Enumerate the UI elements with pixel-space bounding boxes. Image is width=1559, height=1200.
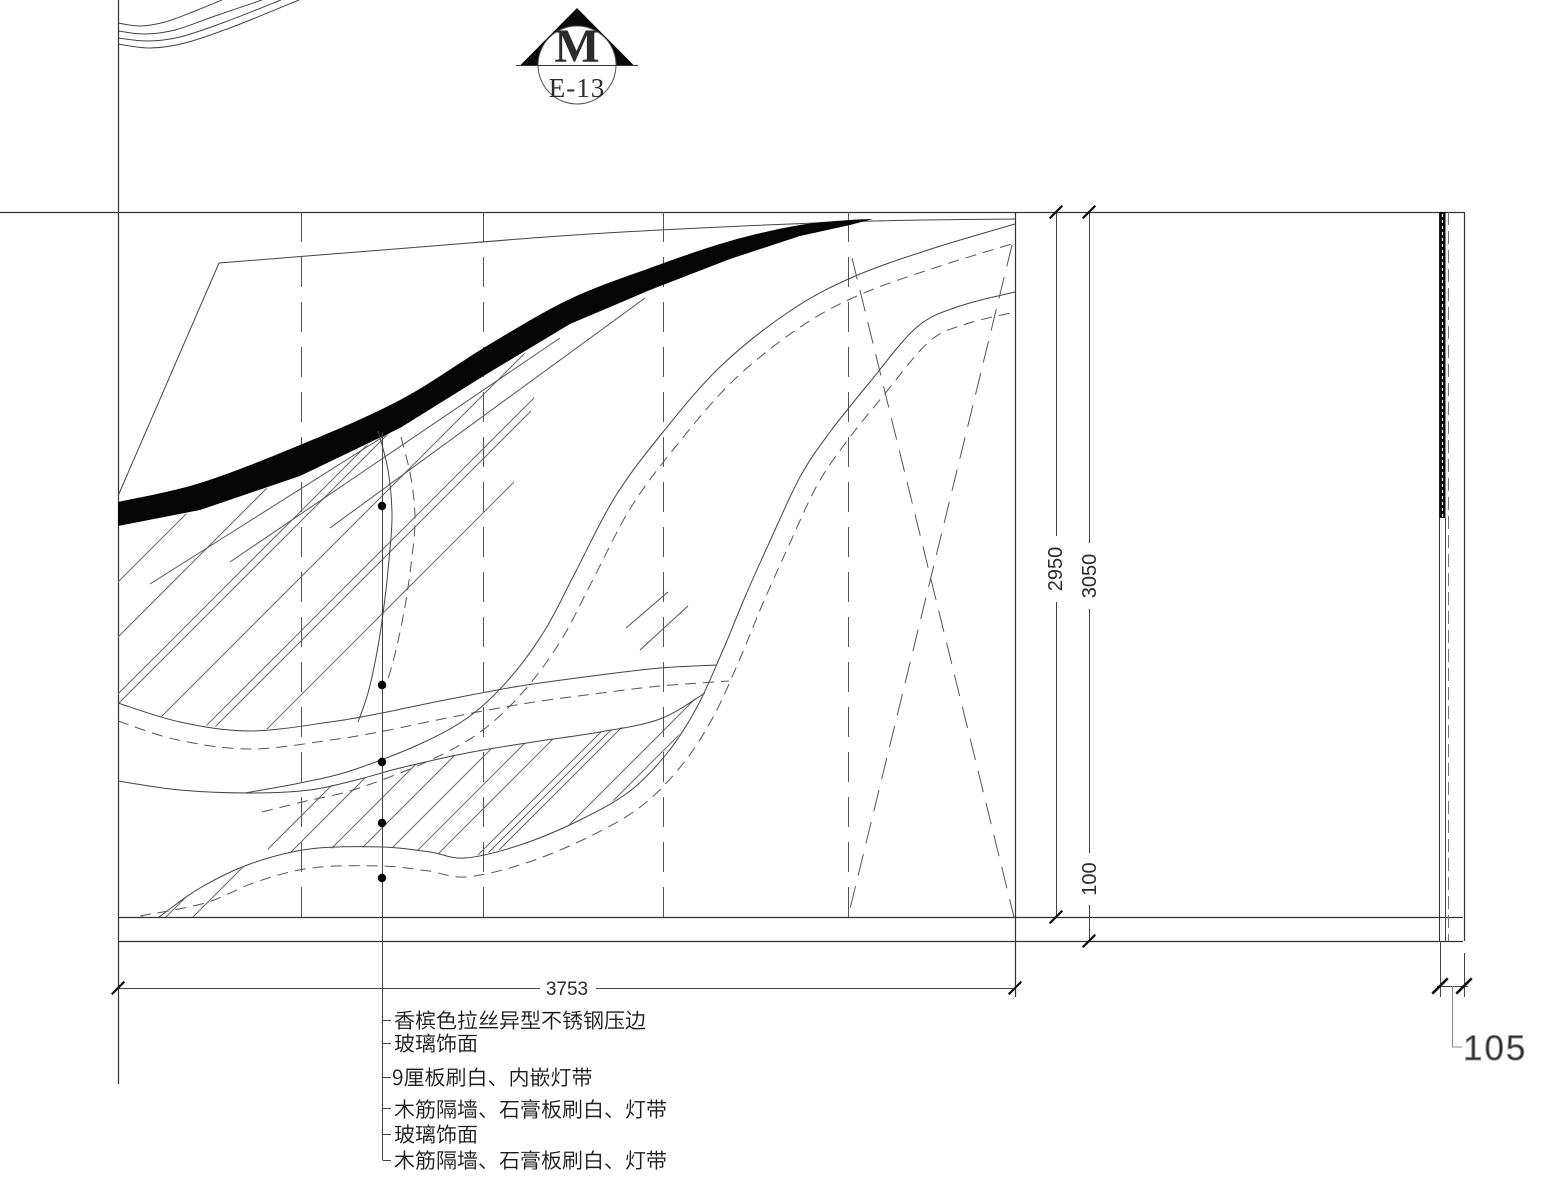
svg-text:2950: 2950 — [1045, 547, 1067, 592]
svg-text:E-13: E-13 — [549, 73, 605, 103]
svg-text:3753: 3753 — [546, 979, 588, 1000]
svg-text:M: M — [554, 20, 599, 73]
svg-text:100: 100 — [1079, 862, 1101, 895]
svg-text:105: 105 — [1463, 1029, 1527, 1068]
svg-text:3050: 3050 — [1079, 554, 1101, 599]
